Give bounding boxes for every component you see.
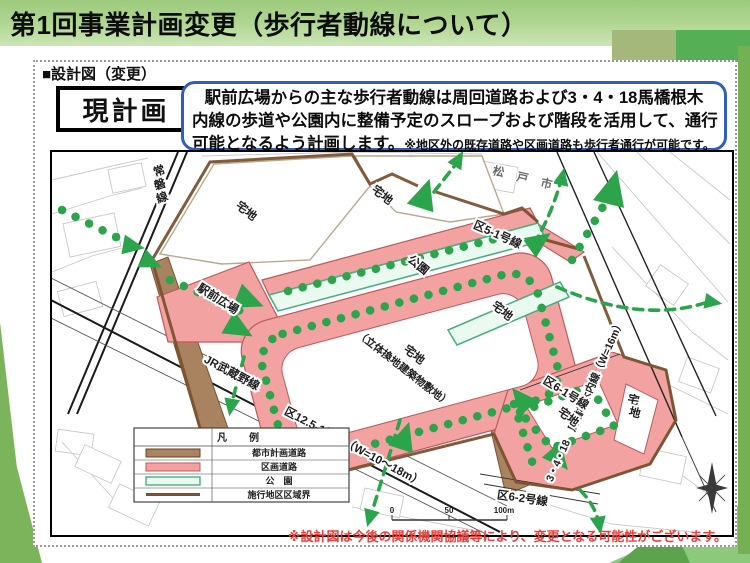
legend-swatch-boundary [146,493,200,496]
plan-map: 常 磐 線 JR武蔵野線 松 戸 市 宅地 宅地 駅前広場 宅地 （立体換地建築… [50,150,734,537]
legend-label-boundary: 施行地区区域界 [247,489,310,500]
callout-line1: 駅前広場からの主な歩行者動線は周回道路および3・4・18馬橋根木 [192,87,716,110]
legend-label-park: 公 園 [265,476,292,486]
slide: 第1回事業計画変更（歩行者動線について） ■設計図（変更） 現計画 駅前広場から… [0,0,750,563]
map-legend: 凡 例 都市計画道路 区画道路 公 園 施行地区区域界 [134,428,349,502]
explanation-callout: 駅前広場からの主な歩行者動線は周回道路および3・4・18馬橋根木 内線の歩道や公… [181,81,727,151]
legend-title: 凡 例 [217,431,265,444]
section-heading: ■設計図（変更） [42,63,156,84]
legend-label-planning-road: 都市計画道路 [251,447,307,458]
legend-swatch-district-road [146,463,200,471]
compass-rose-icon [696,462,728,514]
scale-100m: 100m [494,506,514,515]
banner-accent-olive [612,30,676,62]
plan-map-svg: 常 磐 線 JR武蔵野線 松 戸 市 宅地 宅地 駅前広場 宅地 （立体換地建築… [52,152,732,535]
footnote: ※設計図は今後の関係機関協議等により、変更となる可能性がございます。 [35,526,727,545]
legend-swatch-park [146,477,200,485]
legend-label-district-road: 区画道路 [261,461,298,472]
scale-0: 0 [390,506,395,515]
callout-line2: 内線の歩道や公園内に整備予定のスロープおよび階段を活用して、通行 [192,110,716,133]
legend-swatch-planning-road [146,449,200,457]
scale-50: 50 [445,506,454,515]
right-edge-bar [738,46,750,554]
current-plan-label: 現計画 [56,86,196,132]
content-panel: ■設計図（変更） 現計画 駅前広場からの主な歩行者動線は周回道路および3・4・1… [33,60,737,547]
